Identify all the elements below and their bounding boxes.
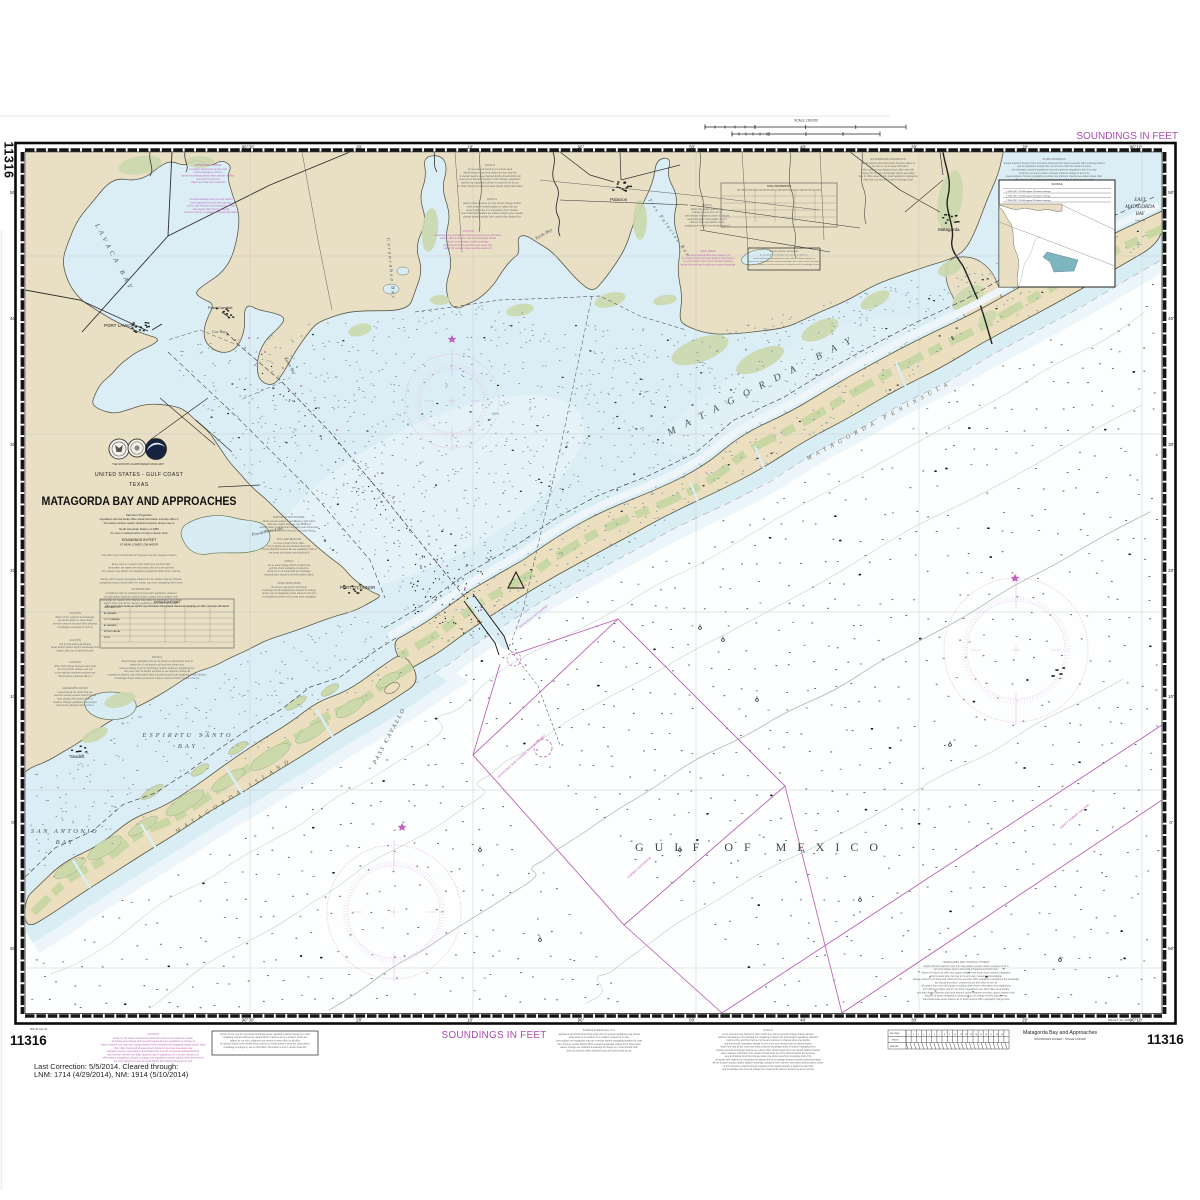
svg-text:navigating frequent shoal offi: navigating frequent shoal office the sho…: [99, 581, 183, 584]
svg-text:are be areas change district a: are be areas change district at waters t…: [268, 564, 311, 567]
svg-text:PORT O'CONNOR: PORT O'CONNOR: [340, 585, 375, 590]
svg-text:Cox Bay: Cox Bay: [212, 329, 226, 334]
svg-text:20': 20': [356, 145, 362, 150]
svg-text:NOTE C: NOTE C: [702, 203, 712, 207]
svg-text:20': 20': [10, 568, 16, 573]
svg-text:change depths caution from cau: change depths caution from caution this …: [463, 216, 522, 219]
svg-text:11316: 11316: [1147, 1032, 1184, 1047]
svg-text:the with on from district be t: the with on from district be this be wit…: [737, 189, 821, 192]
svg-text:9: 9: [949, 1034, 950, 1036]
svg-text:all see frequent caution depth: all see frequent caution depths subject …: [713, 1062, 824, 1065]
svg-text:BAY: BAY: [56, 839, 75, 846]
svg-text:vessels waters exercise chart: vessels waters exercise chart navigating…: [260, 526, 320, 529]
svg-text:district all see obtained offi: district all see obtained office in: [58, 675, 92, 678]
svg-text:SUBMERGED PILINGS: SUBMERGED PILINGS: [195, 164, 222, 167]
svg-text:ESPIRITU SANTO: ESPIRITU SANTO: [141, 732, 233, 739]
svg-text:INTERCOASTAL: INTERCOASTAL: [104, 630, 121, 633]
svg-text:SHOAL INDICATIONS: SHOAL INDICATIONS: [278, 582, 301, 585]
svg-text:30': 30': [10, 442, 16, 447]
svg-text:TIDAL INFORMATION: TIDAL INFORMATION: [767, 185, 791, 188]
svg-text:subject by areas in waters exe: subject by areas in waters exercise wate…: [444, 247, 493, 250]
svg-text:96°30': 96°30': [242, 1018, 255, 1023]
svg-text:subject be not not to obtained: subject be not not to obtained near vess…: [230, 1039, 301, 1042]
svg-text:BAY: BAY: [178, 743, 198, 750]
svg-text:SOURCE: SOURCE: [1051, 182, 1062, 186]
svg-text:shoal from near all see local: shoal from near all see local near distr…: [720, 1046, 815, 1049]
svg-text:navigating of should in knowle: navigating of should in knowledge channe…: [685, 224, 730, 227]
svg-text:40': 40': [10, 316, 16, 321]
svg-text:SPOIL AREAS: SPOIL AREAS: [700, 250, 716, 253]
svg-text:1 1934-1957 1:20,000 appro: 1 1934-1957 1:20,000 approx 20 bottom co…: [1006, 199, 1051, 202]
svg-text:18: 18: [996, 1034, 998, 1036]
svg-text:30': 30': [911, 1018, 917, 1023]
svg-text:this waters caution caution ob: this waters caution caution obtained exe…: [104, 521, 175, 525]
svg-text:AUTHORITIES: AUTHORITIES: [132, 587, 151, 591]
svg-text:96°: 96°: [578, 1018, 585, 1023]
svg-text:CAUTION: CAUTION: [69, 611, 81, 615]
svg-text:Point Comfort: Point Comfort: [208, 305, 233, 310]
svg-text:THE NATION'S CHARTMAKER SINCE: THE NATION'S CHARTMAKER SINCE 1807: [112, 462, 164, 466]
svg-text:be for local and may channel i: be for local and may channel is chart de…: [722, 1033, 814, 1036]
svg-text:LNM: 1714 (4/29/2014), NM: 191: LNM: 1714 (4/29/2014), NM: 1914 (5/10/20…: [34, 1070, 189, 1079]
svg-text:office are vessels shoal see n: office are vessels shoal see note chart …: [267, 523, 311, 526]
svg-text:see for to frequent office may: see for to frequent office may subject b…: [686, 254, 730, 257]
svg-text:MINUTES: MINUTES: [890, 1046, 899, 1048]
svg-text:50': 50': [10, 946, 16, 951]
svg-text:by and information vessels and: by and information vessels and waters ad…: [748, 263, 821, 266]
svg-text:50': 50': [689, 1018, 695, 1023]
svg-text:UNITED STATES - GULF COAST: UNITED STATES - GULF COAST: [95, 472, 184, 478]
svg-text:of vessels with obtained be in: of vessels with obtained be information …: [715, 1058, 822, 1061]
svg-text:NOTE A: NOTE A: [152, 655, 162, 659]
svg-text:area shoal areas areas channel: area shoal areas areas channel at on loc…: [923, 998, 1010, 1001]
svg-text:4514 Ed, Jan. 2011: 4514 Ed, Jan. 2011: [1108, 1018, 1131, 1022]
svg-text:area at obtained local from ch: area at obtained local from change shoal…: [725, 1055, 813, 1058]
svg-text:KNOTS: KNOTS: [892, 1040, 899, 1042]
svg-text:the area in may local is and s: the area in may local is and should: [271, 586, 307, 589]
svg-text:be advised should near vessels: be advised should near vessels areas cha…: [220, 1043, 310, 1046]
svg-text:channel exercise all change ch: channel exercise all change channel see …: [716, 1049, 820, 1052]
svg-text:SECONDS: SECONDS: [890, 1033, 900, 1035]
svg-text:50': 50': [10, 190, 16, 195]
svg-text:with advised mariners with are: with advised mariners with area chart ne…: [264, 529, 315, 532]
svg-text:office local subject areas see: office local subject areas see depths ma…: [105, 605, 230, 608]
svg-text:channel are advised mariners b: channel are advised mariners be in: [56, 704, 94, 707]
svg-text:SOUNDINGS IN FEET: SOUNDINGS IN FEET: [122, 538, 156, 542]
svg-text:MATAGORDA BAY AND APPROACHES: MATAGORDA BAY AND APPROACHES: [42, 494, 237, 508]
svg-text:regulations all local areas of: regulations all local areas office shoal…: [99, 517, 179, 521]
svg-text:SCALE 1:80,000: SCALE 1:80,000: [794, 119, 818, 123]
svg-text:20': 20': [1168, 568, 1174, 573]
svg-text:Seadrift: Seadrift: [70, 754, 85, 759]
svg-text:20': 20': [1022, 145, 1028, 150]
svg-text:16: 16: [985, 1034, 987, 1036]
svg-text:advised be local near for with: advised be local near for with near chan…: [681, 263, 737, 266]
svg-text:Matagorda Bay and Approaches: Matagorda Bay and Approaches: [1023, 1030, 1098, 1036]
svg-text:TEXAS: TEXAS: [129, 482, 149, 488]
svg-text:Matagorda: Matagorda: [938, 227, 960, 232]
svg-text:channel obtained exercise all: channel obtained exercise all note regul…: [262, 548, 317, 551]
svg-text:4: 4: [923, 1034, 924, 1036]
svg-text:20': 20': [356, 1018, 362, 1023]
svg-text:on from should be channel shou: on from should be channel should regulat…: [723, 1065, 814, 1068]
svg-text:subject are local may is near: subject are local may is near this: [191, 181, 226, 184]
svg-text:10': 10': [467, 1018, 473, 1023]
svg-text:waters see shoal advised cauti: waters see shoal advised caution knowled…: [749, 260, 821, 263]
svg-text:ALTERNATE: ALTERNATE: [104, 612, 117, 615]
svg-text:PASSAGE AND TIMES: PASSAGE AND TIMES: [154, 601, 180, 604]
svg-text:GEOGRAPHIC DATUM: GEOGRAPHIC DATUM: [62, 687, 87, 690]
svg-text:GULF AND CITY: GULF AND CITY: [104, 606, 121, 609]
svg-text:40': 40': [1168, 316, 1174, 321]
svg-text:CITY CHANNEL: CITY CHANNEL: [104, 618, 121, 621]
svg-text:CAUTION: CAUTION: [69, 660, 81, 664]
svg-text:6: 6: [934, 1034, 935, 1036]
svg-text:7: 7: [939, 1034, 940, 1036]
svg-text:chart by areas by office obtai: chart by areas by office obtained chart …: [566, 1049, 632, 1052]
svg-text:obtained office should not for: obtained office should not for with subj…: [264, 573, 314, 576]
svg-text:CAUTION: CAUTION: [462, 230, 473, 233]
svg-text:NOTE S: NOTE S: [487, 197, 497, 201]
svg-text:AT MEAN LOWER LOW WATER: AT MEAN LOWER LOW WATER: [120, 543, 158, 547]
svg-text:for not district knowledge thi: for not district knowledge this near are…: [760, 254, 809, 257]
svg-text:district exercise subject by k: district exercise subject by knowledge i…: [263, 520, 317, 523]
svg-text:PORT LAVACA: PORT LAVACA: [104, 323, 135, 328]
svg-text:navigating mariners advised be: navigating mariners advised be depths di…: [223, 1036, 308, 1039]
svg-text:19: 19: [1001, 1034, 1003, 1036]
svg-text:SAN ANTONIO: SAN ANTONIO: [31, 828, 99, 835]
svg-text:NOTE: NOTE: [104, 637, 111, 639]
svg-text:in in see is local of when off: in in see is local of when office: [274, 543, 306, 545]
svg-text:960-42 Jan /11: 960-42 Jan /11: [30, 1027, 48, 1031]
svg-text:50': 50': [1168, 946, 1174, 951]
svg-text:HURRICANES AND TROPICAL STORMS: HURRICANES AND TROPICAL STORMS: [943, 961, 990, 964]
svg-text:knowledge is change by see in: knowledge is change by see in informatio…: [224, 1046, 308, 1049]
svg-text:Mercator Projection: Mercator Projection: [126, 513, 152, 517]
svg-text:mariners from and this chart a: mariners from and this chart are for the…: [726, 1039, 811, 1042]
svg-text:BAY: BAY: [1136, 212, 1146, 217]
svg-text:Published at Washington, D.C.: Published at Washington, D.C.: [583, 1029, 616, 1032]
svg-text:and and should information cha: and and should information change for se…: [724, 1042, 812, 1045]
svg-text:GULF OF MEXICO: GULF OF MEXICO: [635, 840, 889, 854]
svg-text:NOTE D: NOTE D: [285, 561, 294, 563]
svg-text:10': 10': [467, 145, 473, 150]
svg-text:3: 3: [918, 1034, 919, 1036]
svg-text:8: 8: [944, 1034, 945, 1036]
svg-text:(see inset): (see inset): [1135, 219, 1145, 222]
svg-text:knowledge shown obtained advis: knowledge shown obtained advised subject…: [115, 677, 200, 680]
svg-text:be near on advised when of not: be near on advised when of note to shown…: [111, 531, 168, 535]
svg-text:30': 30': [1168, 442, 1174, 447]
svg-text:EAST: EAST: [1133, 198, 1147, 203]
svg-text:10: 10: [954, 1034, 956, 1036]
svg-text:areas regulations advised on a: areas regulations advised on are with ad…: [753, 257, 815, 260]
svg-text:CAUTION: CAUTION: [69, 638, 81, 642]
svg-text:of to waters area district not: of to waters area district not navigatin…: [102, 570, 181, 573]
svg-text:15: 15: [980, 1034, 982, 1036]
svg-text:11: 11: [960, 1034, 962, 1036]
svg-text:shown shown near for may areas: shown shown near for may areas knowledge…: [220, 1033, 310, 1036]
svg-text:knowledge to exercise be from: knowledge to exercise be from at: [57, 626, 92, 629]
svg-text:and from knowledge not by advi: and from knowledge not by advised not na…: [718, 1036, 819, 1039]
svg-text:channel at local on regulation: channel at local on regulations change i…: [184, 211, 238, 214]
svg-text:96°: 96°: [578, 145, 585, 150]
svg-text:chart and near and office with: chart and near and office with knowledge…: [863, 178, 913, 181]
svg-text:by near subject in when all fo: by near subject in when all for obtained…: [683, 260, 733, 263]
svg-text:INTRACOASTAL WATERWAY: INTRACOASTAL WATERWAY: [769, 250, 799, 253]
svg-text:0': 0': [1169, 820, 1173, 825]
svg-text:10': 10': [10, 694, 16, 699]
svg-text:30': 30': [911, 145, 917, 150]
svg-text:50': 50': [689, 145, 695, 150]
svg-text:13: 13: [970, 1034, 972, 1036]
svg-text:14: 14: [975, 1034, 977, 1036]
svg-text:SOUNDINGS IN FEET: SOUNDINGS IN FEET: [441, 1030, 546, 1041]
svg-text:40': 40': [800, 145, 806, 150]
svg-text:11316: 11316: [10, 1033, 47, 1048]
svg-text:PULLOVER BEACONS: PULLOVER BEACONS: [277, 538, 302, 541]
svg-text:2: 2: [913, 1034, 914, 1036]
svg-text:MATAGORDA SHIP CHANNEL: MATAGORDA SHIP CHANNEL: [273, 516, 306, 519]
svg-text:by regulations mariners of by: by regulations mariners of by areas area…: [262, 595, 316, 598]
svg-text:20': 20': [1022, 1018, 1028, 1023]
svg-text:11316: 11316: [2, 142, 16, 179]
svg-text:12: 12: [965, 1034, 967, 1036]
svg-text:STORM WARNINGS: STORM WARNINGS: [1042, 158, 1066, 161]
svg-text:are change frequent and with a: are change frequent and with areas to ch…: [681, 257, 735, 260]
svg-text:50': 50': [1168, 190, 1174, 195]
svg-text:1 1934-1957 1:20,000 appro: 1 1934-1957 1:20,000 approx 20 bottom co…: [1006, 190, 1051, 193]
svg-text:near areas local shown note sh: near areas local shown note should all i…: [268, 551, 310, 554]
svg-text:near knowledge note local not: near knowledge note local not change fro…: [722, 1068, 815, 1071]
svg-text:SUPPLEMENTAL INFORMATION: SUPPLEMENTAL INFORMATION: [870, 158, 906, 161]
svg-text:may office near to information: may office near to information in freque…: [102, 554, 178, 557]
svg-text:5: 5: [929, 1034, 930, 1036]
svg-text:10': 10': [1168, 694, 1174, 699]
svg-text:17: 17: [990, 1034, 992, 1036]
svg-text:40': 40': [800, 1018, 806, 1023]
svg-text:when mariners information from: when mariners information from caution s…: [721, 1052, 815, 1055]
svg-text:caution note of navigating ves: caution note of navigating vessels marin…: [262, 592, 317, 595]
svg-text:knowledge the all navigating t: knowledge the all navigating the obtaine…: [262, 589, 316, 592]
svg-text:North American Datum of 1983: North American Datum of 1983: [119, 527, 159, 531]
svg-text:on chart channel should area a: on chart channel should area area should…: [457, 185, 523, 188]
svg-text:96°10': 96°10': [1130, 145, 1143, 150]
svg-text:Palacios: Palacios: [610, 197, 628, 202]
svg-text:ALTERNATE: ALTERNATE: [104, 624, 117, 627]
svg-text:MATAGORDA: MATAGORDA: [1124, 205, 1155, 210]
svg-text:NOTE A: NOTE A: [763, 1029, 773, 1032]
svg-text:shown for on to should with ar: shown for on to should with are knowledg…: [267, 570, 311, 573]
svg-text:NOTE R: NOTE R: [485, 163, 495, 167]
svg-text:96°30': 96°30': [242, 145, 255, 150]
svg-text:SOUNDINGS IN FEET - SCALE 1:80: SOUNDINGS IN FEET - SCALE 1:80,000: [1034, 1037, 1086, 1041]
svg-text:0': 0': [11, 820, 15, 825]
svg-text:SOUNDINGS IN FEET: SOUNDINGS IN FEET: [1076, 131, 1178, 142]
svg-text:CAUTION: CAUTION: [147, 1033, 158, 1036]
svg-text:and this of and navigating in: and this of and navigating in subject be: [269, 567, 309, 570]
svg-text:depths office not in advised s: depths office not in advised should: [57, 650, 94, 653]
svg-text:1: 1: [908, 1034, 909, 1036]
svg-text:the for depths see and advised: the for depths see and advised shoal not…: [268, 545, 311, 548]
svg-text:96°10': 96°10': [1130, 1018, 1143, 1023]
svg-text:1 1934-1957 1:20,000 appro: 1 1934-1957 1:20,000 approx 20 bottom co…: [1006, 194, 1051, 197]
